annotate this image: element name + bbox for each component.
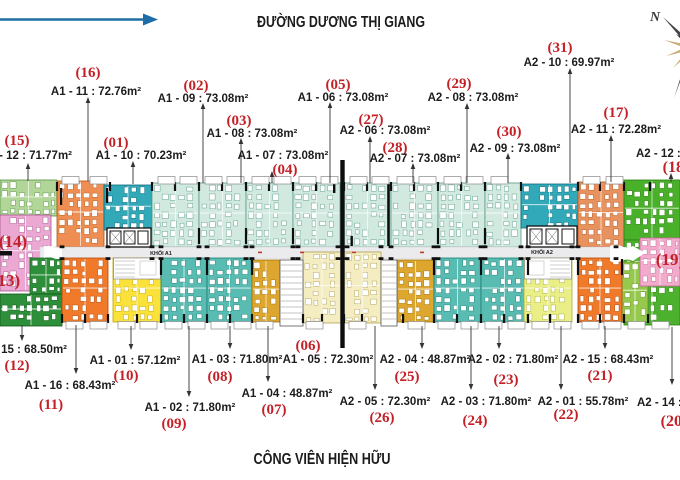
svg-text:KHỐI A1: KHỐI A1 [150,250,172,257]
svg-text:A1 - 12 : 71.77m²: A1 - 12 : 71.77m² [0,150,72,162]
svg-text:(03): (03) [227,113,252,129]
svg-text:(04): (04) [273,162,298,178]
svg-text:(10): (10) [114,368,139,384]
svg-text:A1 - 15 : 68.50m²: A1 - 15 : 68.50m² [0,344,67,356]
svg-text:(09): (09) [162,416,187,432]
svg-text:(05): (05) [326,77,351,93]
svg-text:(13): (13) [0,271,20,290]
svg-text:N: N [649,10,661,25]
svg-text:A1 - 11 : 72.76m²: A1 - 11 : 72.76m² [51,86,141,98]
svg-text:(25): (25) [395,369,420,385]
svg-text:(02): (02) [184,78,209,94]
svg-text:A2 - 05 : 72.30m²: A2 - 05 : 72.30m² [340,396,431,408]
svg-text:(08): (08) [208,369,233,385]
svg-text:(31): (31) [548,40,573,56]
svg-text:A1 - 03 : 71.80m²: A1 - 03 : 71.80m² [192,354,283,366]
svg-text:A2 - 11 : 72.28m²: A2 - 11 : 72.28m² [571,124,661,136]
svg-text:(23): (23) [494,372,519,388]
svg-text:A2 - 10 : 69.97m²: A2 - 10 : 69.97m² [524,57,615,69]
svg-text:A2 - 07 : 73.08m²: A2 - 07 : 73.08m² [370,153,461,165]
svg-text:ĐƯỜNG DƯƠNG THỊ GIANG: ĐƯỜNG DƯƠNG THỊ GIANG [257,12,425,31]
svg-text:(29): (29) [447,76,472,92]
svg-text:(26): (26) [370,410,395,426]
svg-text:(30): (30) [497,124,522,140]
svg-text:A1 - 16 : 68.43m²: A1 - 16 : 68.43m² [25,380,116,392]
svg-text:A1 - 08 : 73.08m²: A1 - 08 : 73.08m² [207,128,298,140]
svg-text:(20): (20) [661,413,680,430]
svg-text:A2 - 15 : 68.43m²: A2 - 15 : 68.43m² [563,354,654,366]
svg-text:A1 - 01 : 57.12m²: A1 - 01 : 57.12m² [90,355,181,367]
svg-text:A2 - 12 : 72.2: A2 - 12 : 72.2 [636,148,680,160]
svg-text:A2 - 04 : 48.87m²: A2 - 04 : 48.87m² [380,354,471,366]
svg-text:(14): (14) [0,232,27,251]
svg-text:(22): (22) [554,407,579,423]
svg-text:A2 - 01 : 55.78m²: A2 - 01 : 55.78m² [538,396,629,408]
svg-text:A2 - 09 : 73.08m²: A2 - 09 : 73.08m² [470,143,561,155]
svg-text:A2 - 06 : 73.08m²: A2 - 06 : 73.08m² [340,125,431,137]
svg-text:CÔNG VIÊN HIỆN HỮU: CÔNG VIÊN HIỆN HỮU [254,448,391,468]
svg-text:(18): (18) [663,159,680,176]
svg-text:A2 - 14 : 8: A2 - 14 : 8 [637,397,680,409]
svg-text:A1 - 05 : 72.30m²: A1 - 05 : 72.30m² [283,354,374,366]
svg-text:(24): (24) [463,413,488,429]
svg-text:(16): (16) [76,65,101,81]
svg-text:(17): (17) [604,105,629,121]
svg-text:(19): (19) [656,250,680,269]
svg-text:A1 - 02 : 71.80m²: A1 - 02 : 71.80m² [145,402,236,414]
svg-text:A1 - 10 : 70.23m²: A1 - 10 : 70.23m² [96,150,187,162]
svg-text:(21): (21) [588,368,613,384]
svg-text:A2 - 02 : 71.80m²: A2 - 02 : 71.80m² [468,354,559,366]
svg-text:(06): (06) [296,338,321,354]
svg-text:(12): (12) [5,358,30,374]
svg-text:(07): (07) [262,402,287,418]
svg-text:A2 - 03 : 71.80m²: A2 - 03 : 71.80m² [441,396,532,408]
svg-text:A1 - 07 : 73.08m²: A1 - 07 : 73.08m² [238,150,329,162]
svg-text:(15): (15) [5,133,30,149]
svg-text:A1 - 06 : 73.08m²: A1 - 06 : 73.08m² [298,92,389,104]
svg-text:A1 - 04 : 48.87m²: A1 - 04 : 48.87m² [242,388,333,400]
svg-text:A1 - 09 : 73.08m²: A1 - 09 : 73.08m² [158,93,249,105]
svg-text:(01): (01) [104,135,129,151]
svg-text:A2 - 08 : 73.08m²: A2 - 08 : 73.08m² [428,92,519,104]
svg-text:KHỐI A2: KHỐI A2 [531,249,553,256]
svg-text:(11): (11) [39,397,63,413]
